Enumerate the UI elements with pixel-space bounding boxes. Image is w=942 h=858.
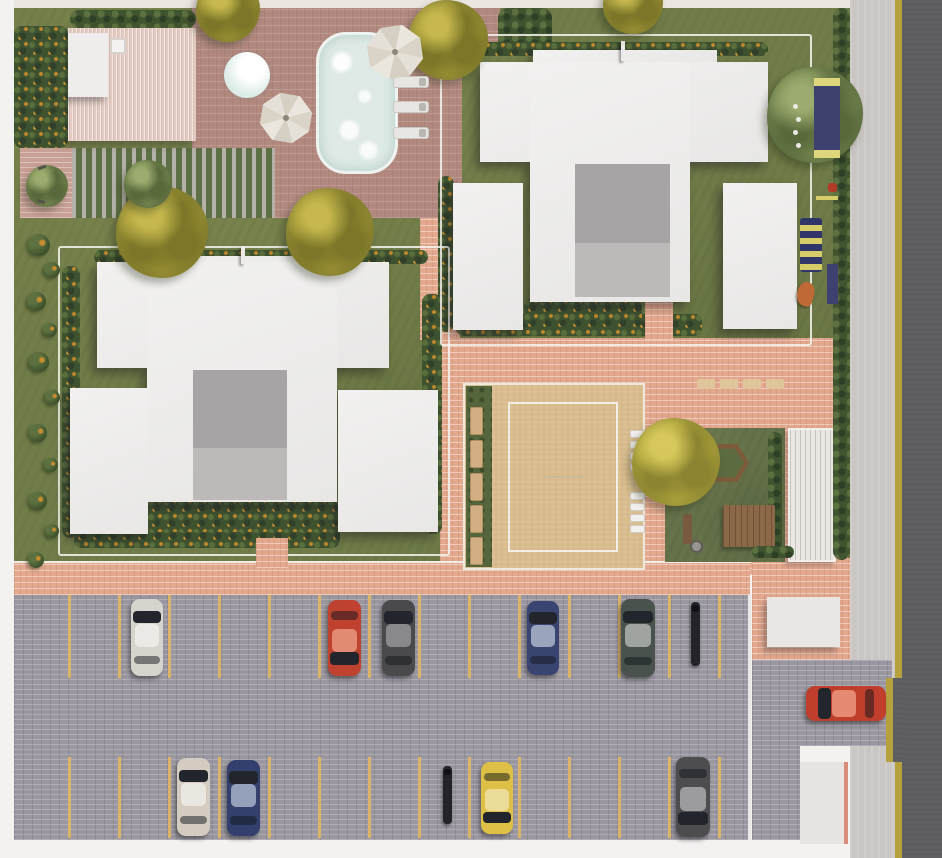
- fire-pit: [690, 540, 703, 553]
- car-roof: [680, 787, 707, 811]
- parking-line-top: [468, 595, 471, 678]
- parking-line-top: [368, 595, 371, 678]
- car-navy: [227, 760, 260, 836]
- play-ladder: [800, 218, 822, 272]
- garden-bench: [683, 514, 692, 544]
- play-toy-red: [828, 183, 837, 192]
- car-windshield: [330, 652, 359, 664]
- motorcycle: [443, 766, 452, 824]
- parking-line-bottom: [68, 757, 71, 838]
- court-bench: [470, 440, 483, 468]
- tree: [632, 418, 720, 506]
- road-widening: [893, 678, 905, 762]
- car-rear-window: [679, 769, 707, 778]
- car-dark-suv: [621, 599, 655, 677]
- car-rear-window: [865, 689, 874, 718]
- bush: [28, 234, 50, 256]
- play-mat-cap: [814, 78, 840, 86]
- garage-roof: [767, 597, 840, 647]
- car-roof: [386, 624, 412, 647]
- paving-dash: [720, 379, 738, 389]
- car-red: [328, 600, 361, 676]
- stepping-stone: [796, 117, 801, 122]
- parking-line-bottom: [418, 757, 421, 838]
- car-windshield: [483, 812, 511, 824]
- car-yellow: [481, 762, 513, 834]
- car-roof: [625, 624, 652, 647]
- car-rear-window: [385, 656, 412, 664]
- road-yellow-line-mid: [886, 678, 893, 762]
- court-seat: [630, 514, 645, 522]
- parking-line-bottom: [518, 757, 521, 838]
- hot-tub: [224, 52, 270, 98]
- car-roof: [231, 784, 257, 807]
- court-center-mark: [543, 476, 583, 478]
- parking-line-bottom: [668, 757, 671, 838]
- car-roof: [181, 783, 207, 806]
- tree: [26, 165, 68, 207]
- court-seat: [630, 492, 645, 500]
- bush: [45, 390, 60, 405]
- parking-line-bottom: [568, 757, 571, 838]
- bush: [29, 424, 47, 442]
- sun-lounger: [393, 76, 429, 88]
- motorcycle: [691, 602, 700, 666]
- west-bed: [14, 26, 68, 148]
- bush: [28, 552, 44, 568]
- car-gray: [676, 757, 710, 837]
- car-windshield: [623, 611, 653, 623]
- stepping-stone: [793, 130, 798, 135]
- south-walkway: [752, 746, 800, 840]
- car-beige: [177, 758, 210, 836]
- car-roof: [485, 789, 510, 811]
- car-rear-window: [230, 816, 257, 824]
- car-rear-window: [134, 656, 160, 664]
- parking-line-bottom: [168, 757, 171, 838]
- bldg-a-entrance-path: [256, 538, 288, 568]
- car-windshield: [179, 770, 208, 782]
- bush: [29, 352, 49, 372]
- parking-line-top: [718, 595, 721, 678]
- garage-hedge: [752, 546, 794, 558]
- bush: [45, 524, 59, 538]
- car-roof: [135, 624, 160, 647]
- car-windshield: [818, 688, 831, 719]
- car-roof: [332, 629, 358, 652]
- parking-line-bottom: [218, 757, 221, 838]
- road-yellow-line-upper: [895, 0, 902, 678]
- paving-dash: [766, 379, 784, 389]
- parking-line-bottom: [618, 757, 621, 838]
- bldg-a-garden-ring: [58, 246, 450, 556]
- court-bench: [470, 537, 483, 565]
- road: [902, 0, 942, 858]
- car-windshield: [529, 612, 557, 624]
- court-seat: [630, 525, 645, 533]
- car-blue: [527, 601, 559, 675]
- parking-line-top: [318, 595, 321, 678]
- parking-line-top: [518, 595, 521, 678]
- bush: [44, 262, 60, 278]
- parking-line-bottom: [118, 757, 121, 838]
- parking-line-bottom: [718, 757, 721, 838]
- play-mat-cap: [814, 150, 840, 158]
- sun-lounger: [393, 127, 429, 139]
- paving-dash: [697, 379, 715, 389]
- parking-line-bottom: [468, 757, 471, 838]
- clubhouse-skylight: [110, 38, 126, 54]
- car-windshield: [229, 771, 258, 783]
- car-red-road: [806, 686, 886, 721]
- car-roof: [531, 625, 556, 647]
- paving-dash: [743, 379, 761, 389]
- parking-line-top: [418, 595, 421, 678]
- north-hedge: [70, 10, 196, 28]
- parking-line-top: [118, 595, 121, 678]
- play-mat-narrow: [827, 264, 838, 304]
- bush: [29, 492, 47, 510]
- ramp: [800, 762, 846, 844]
- car-white-suv: [131, 599, 163, 676]
- car-dark-gray: [382, 600, 415, 676]
- car-rear-window: [180, 816, 207, 825]
- court-bench: [470, 407, 483, 435]
- site-plan-canvas: [0, 0, 942, 858]
- car-rear-window: [624, 657, 652, 666]
- bush: [27, 292, 46, 311]
- parking-line-bottom: [368, 757, 371, 838]
- ramp-edge: [844, 762, 848, 844]
- court-bench: [470, 505, 483, 533]
- parking-line-top: [168, 595, 171, 678]
- bldg-b-garden-ring: [440, 34, 812, 346]
- car-rear-window: [484, 773, 510, 781]
- parking-line-bottom: [318, 757, 321, 838]
- car-windshield: [384, 611, 413, 623]
- car-windshield: [133, 611, 161, 623]
- stepping-stone: [793, 104, 798, 109]
- court-seat: [630, 503, 645, 511]
- bush: [44, 458, 58, 472]
- bush: [43, 323, 57, 337]
- car-rear-window: [530, 656, 556, 664]
- parking-line-bottom: [268, 757, 271, 838]
- road-yellow-line-lower: [895, 762, 902, 858]
- white-pergola: [788, 428, 836, 562]
- tree: [124, 160, 172, 208]
- car-rear-window: [331, 611, 358, 619]
- tree: [286, 188, 374, 276]
- garden-deck: [723, 505, 775, 547]
- bldg-b-entrance-path: [645, 298, 673, 340]
- parking-line-top: [68, 595, 71, 678]
- parking-line-top: [268, 595, 271, 678]
- play-bar-yellow: [816, 196, 838, 200]
- play-mat: [814, 86, 840, 150]
- sun-lounger: [393, 101, 429, 113]
- court-bench: [470, 473, 483, 501]
- car-roof: [832, 690, 856, 717]
- stepping-stone: [796, 143, 801, 148]
- car-windshield: [678, 812, 708, 825]
- parking-line-top: [668, 595, 671, 678]
- parking-line-top: [218, 595, 221, 678]
- parking-end-line: [748, 595, 751, 840]
- parking-line-top: [568, 595, 571, 678]
